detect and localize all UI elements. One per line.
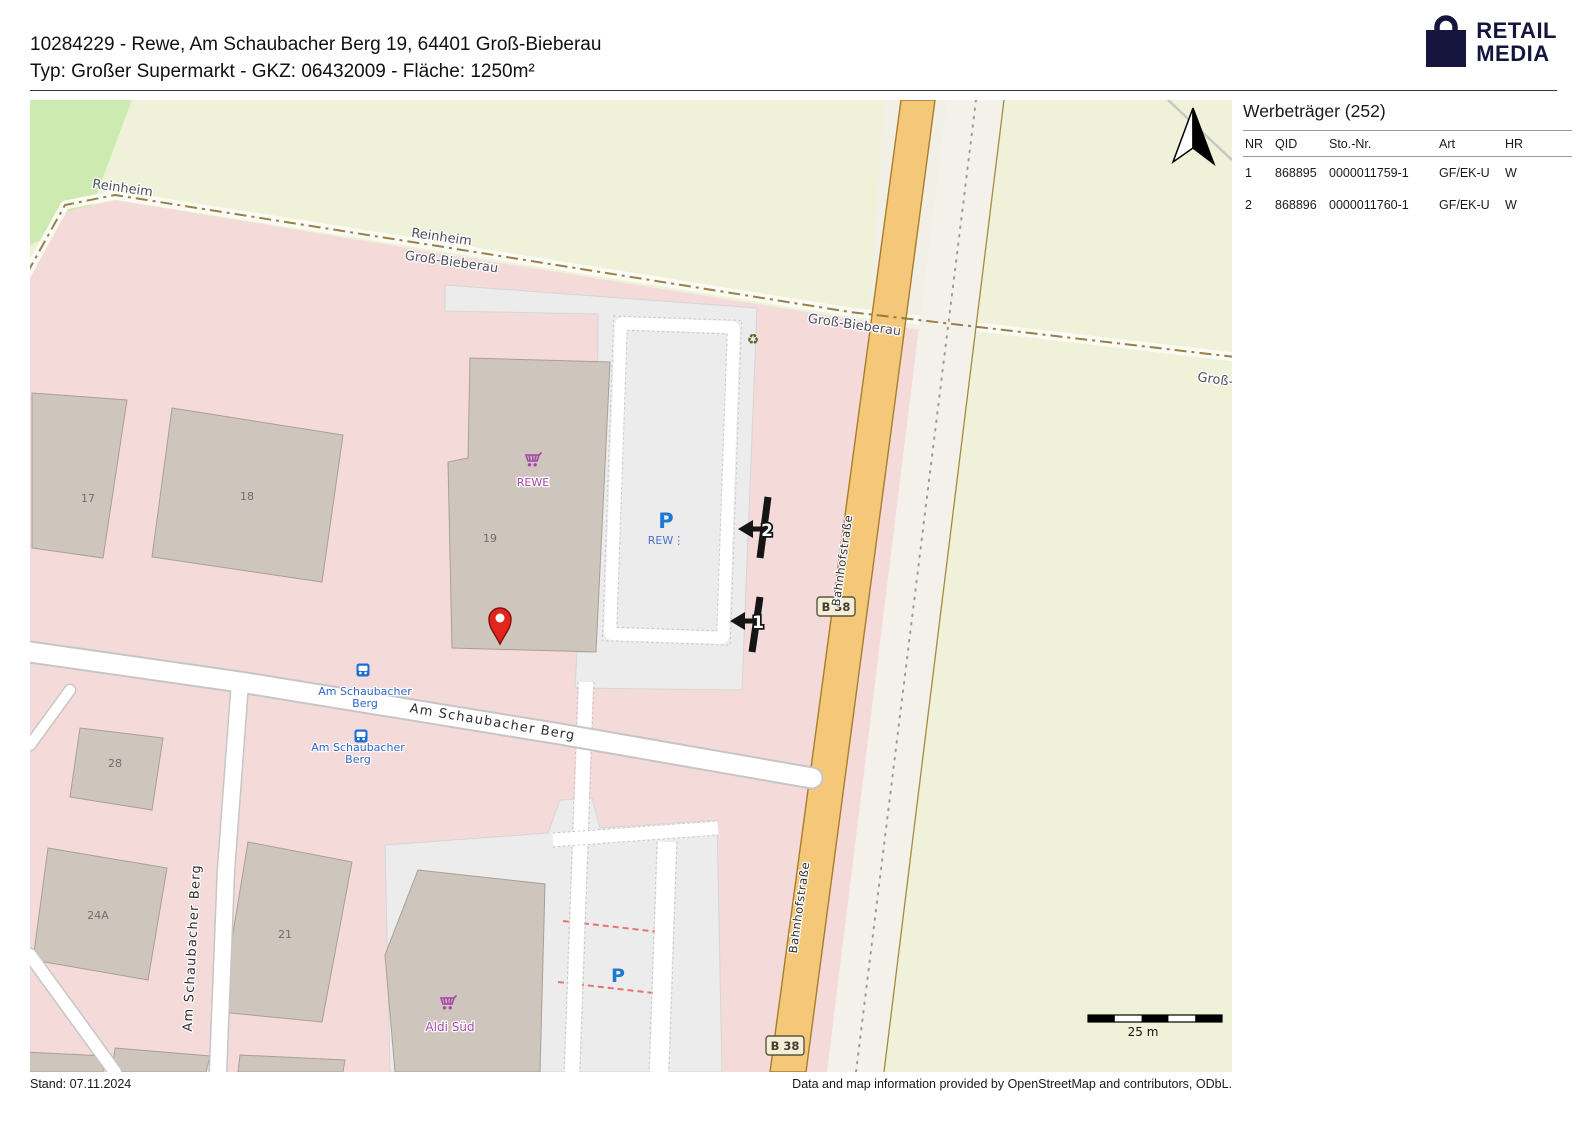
svg-text:B 38: B 38	[771, 1039, 800, 1053]
scale-label: 25 m	[1128, 1025, 1159, 1039]
housenumber-28: 28	[108, 757, 122, 770]
werbetraeger-panel: Werbeträger (252) NR QID Sto.-Nr. Art HR…	[1243, 101, 1573, 221]
housenumber-17: 17	[81, 492, 95, 505]
table-header: NR QID Sto.-Nr. Art HR	[1243, 131, 1573, 156]
cell-qid: 868895	[1275, 166, 1329, 180]
bus-stop-icon[interactable]	[357, 664, 370, 677]
marker-number: 2	[761, 521, 773, 541]
marker-number: 1	[752, 613, 764, 633]
building-rewe	[448, 358, 610, 652]
panel-title: Werbeträger (252)	[1243, 101, 1573, 130]
col-nr: NR	[1245, 137, 1275, 151]
header-divider	[30, 90, 1557, 91]
col-hr: HR	[1505, 137, 1573, 151]
housenumber-21: 21	[278, 928, 292, 941]
retail-media-logo: RETAIL MEDIA	[1423, 14, 1557, 70]
map-canvas[interactable]: B 38 B 38 Reinheim Reinheim Groß-Biebera…	[30, 100, 1232, 1072]
housenumber-19: 19	[483, 532, 497, 545]
recycling-icon: ♻	[747, 332, 760, 348]
col-qid: QID	[1275, 137, 1329, 151]
bus-stop-label: Berg	[352, 697, 378, 710]
date-stamp: Stand: 07.11.2024	[30, 1077, 131, 1091]
poi-label-aldi: Aldi Süd	[425, 1020, 474, 1034]
housenumber-24a: 24A	[87, 909, 109, 922]
document-header: 10284229 - Rewe, Am Schaubacher Berg 19,…	[30, 31, 601, 85]
road-shield-b38: B 38	[766, 1036, 804, 1055]
attribution-text: Data and map information provided by Ope…	[0, 1077, 1232, 1091]
cell-nr: 2	[1245, 198, 1275, 212]
cell-nr: 1	[1245, 166, 1275, 180]
bus-stop-label: Berg	[345, 753, 371, 766]
cell-qid: 868896	[1275, 198, 1329, 212]
cell-art: GF/EK-U	[1439, 198, 1505, 212]
cell-hr: W	[1505, 198, 1573, 212]
table-row[interactable]: 1 868895 0000011759-1 GF/EK-U W	[1243, 157, 1573, 189]
building-aldi	[385, 870, 545, 1072]
page: 10284229 - Rewe, Am Schaubacher Berg 19,…	[0, 0, 1587, 1123]
location-subtitle: Typ: Großer Supermarkt - GKZ: 06432009 -…	[30, 58, 601, 85]
shopping-bag-icon	[1423, 14, 1469, 70]
cell-hr: W	[1505, 166, 1573, 180]
cell-art: GF/EK-U	[1439, 166, 1505, 180]
parking-p-label: P	[611, 965, 625, 987]
housenumber-18: 18	[240, 490, 254, 503]
location-title: 10284229 - Rewe, Am Schaubacher Berg 19,…	[30, 31, 601, 58]
col-art: Art	[1439, 137, 1505, 151]
map-container[interactable]: B 38 B 38 Reinheim Reinheim Groß-Biebera…	[30, 100, 1232, 1072]
poi-label-rewe: REWE	[517, 476, 549, 489]
parking-name-label: REW⋮	[648, 534, 684, 547]
cell-stonr: 0000011759-1	[1329, 166, 1439, 180]
logo-line1: RETAIL	[1476, 19, 1557, 42]
parking-p-label: P	[658, 509, 673, 533]
logo-line2: MEDIA	[1476, 42, 1557, 65]
col-stonr: Sto.-Nr.	[1329, 137, 1439, 151]
table-row[interactable]: 2 868896 0000011760-1 GF/EK-U W	[1243, 189, 1573, 221]
cell-stonr: 0000011760-1	[1329, 198, 1439, 212]
